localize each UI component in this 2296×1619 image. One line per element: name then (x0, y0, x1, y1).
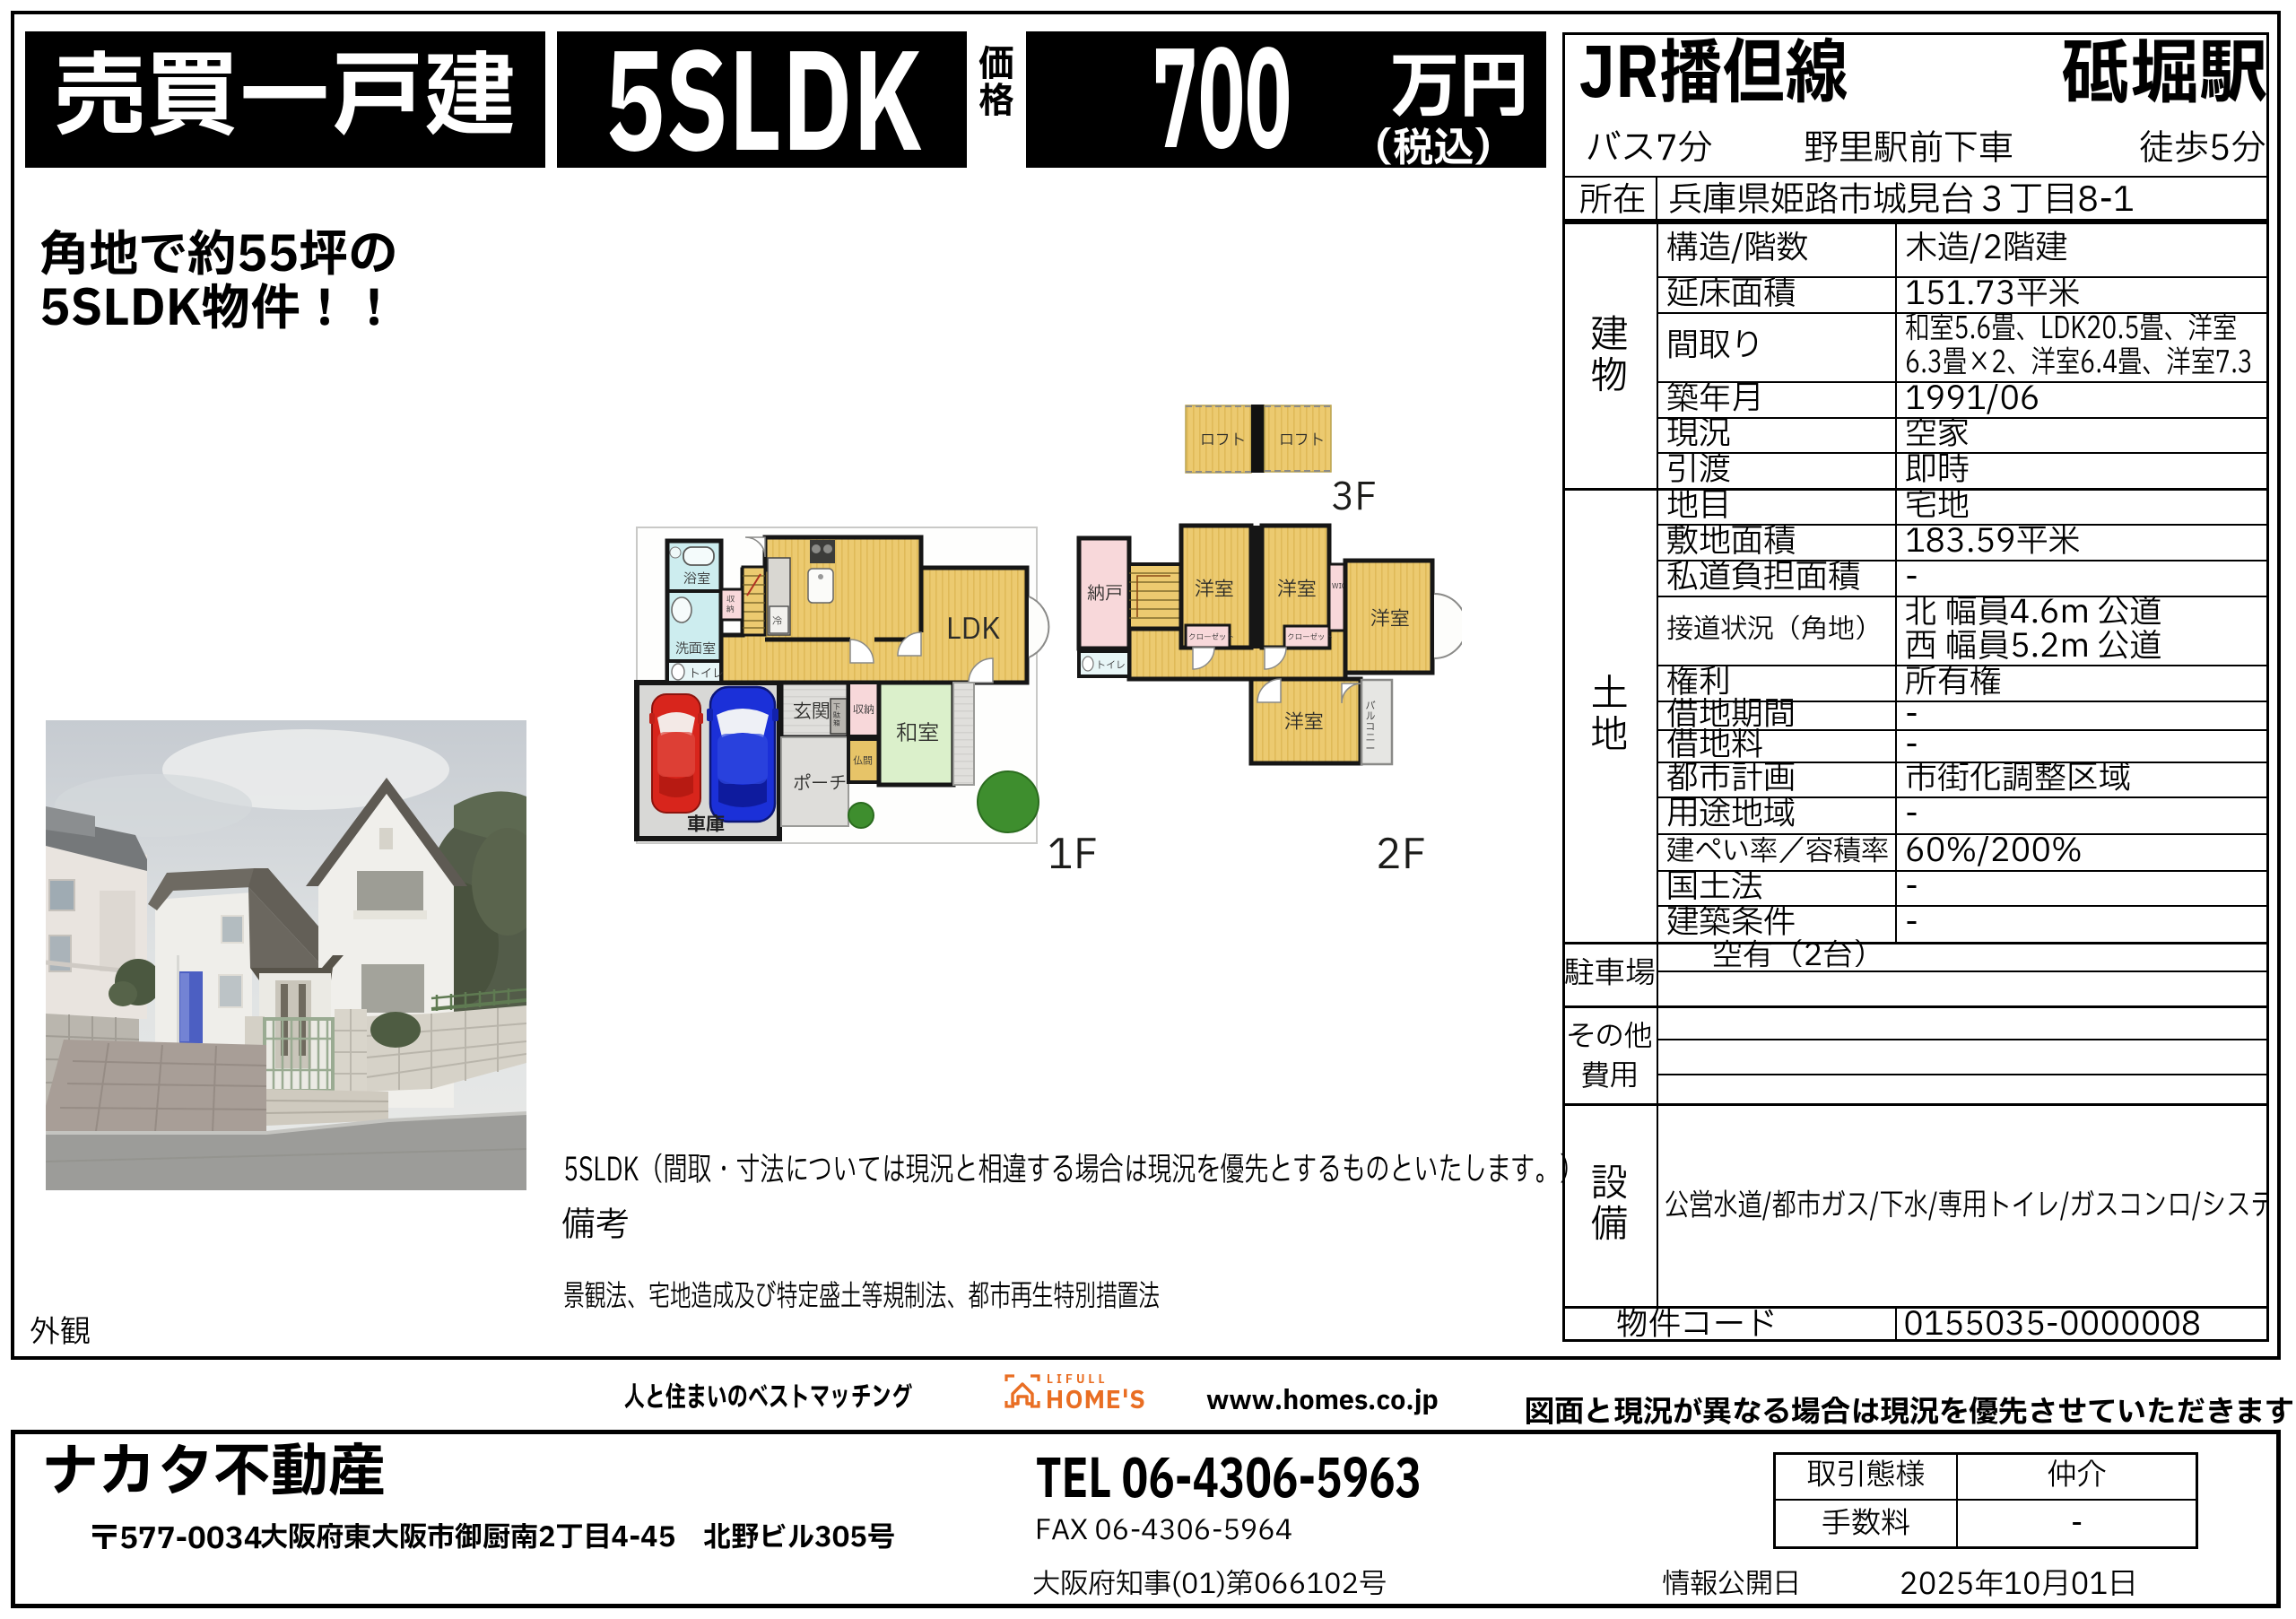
svg-text:箱: 箱 (833, 718, 841, 729)
svg-text:仏間: 仏間 (853, 753, 873, 769)
svg-text:洗面室: 洗面室 (675, 639, 716, 659)
svg-text:LDK: LDK (946, 609, 1001, 652)
svg-text:収納: 収納 (853, 702, 874, 718)
svg-text:冷: 冷 (772, 614, 782, 629)
svg-text:2F: 2F (1376, 825, 1426, 887)
svg-text:洋室: 洋室 (1277, 575, 1317, 605)
svg-text:1F: 1F (1048, 825, 1098, 887)
svg-text:洋室: 洋室 (1370, 605, 1410, 634)
svg-text:和室: 和室 (896, 718, 939, 750)
svg-text:クローゼット: クローゼット (1188, 631, 1234, 643)
svg-text:納戸: 納戸 (1087, 580, 1123, 607)
svg-text:HOME'S: HOME'S (1046, 1382, 1146, 1415)
svg-text:洋室: 洋室 (1195, 575, 1234, 605)
svg-text:ロフト: ロフト (1200, 430, 1246, 452)
svg-text:玄関: 玄関 (793, 699, 831, 727)
svg-text:3F: 3F (1331, 470, 1377, 527)
svg-text:浴室: 浴室 (683, 569, 710, 589)
svg-text:トイレ: トイレ (689, 665, 724, 683)
svg-text:クローゼット: クローゼット (1287, 631, 1333, 643)
svg-text:バルコニー: バルコニー (1363, 700, 1378, 753)
svg-text:洋室: 洋室 (1284, 708, 1324, 737)
svg-text:納: 納 (726, 603, 735, 615)
svg-text:ロフト: ロフト (1279, 430, 1325, 452)
svg-text:トイレ: トイレ (1096, 657, 1126, 673)
svg-text:ポーチ: ポーチ (793, 770, 847, 797)
svg-text:車庫: 車庫 (687, 812, 725, 840)
